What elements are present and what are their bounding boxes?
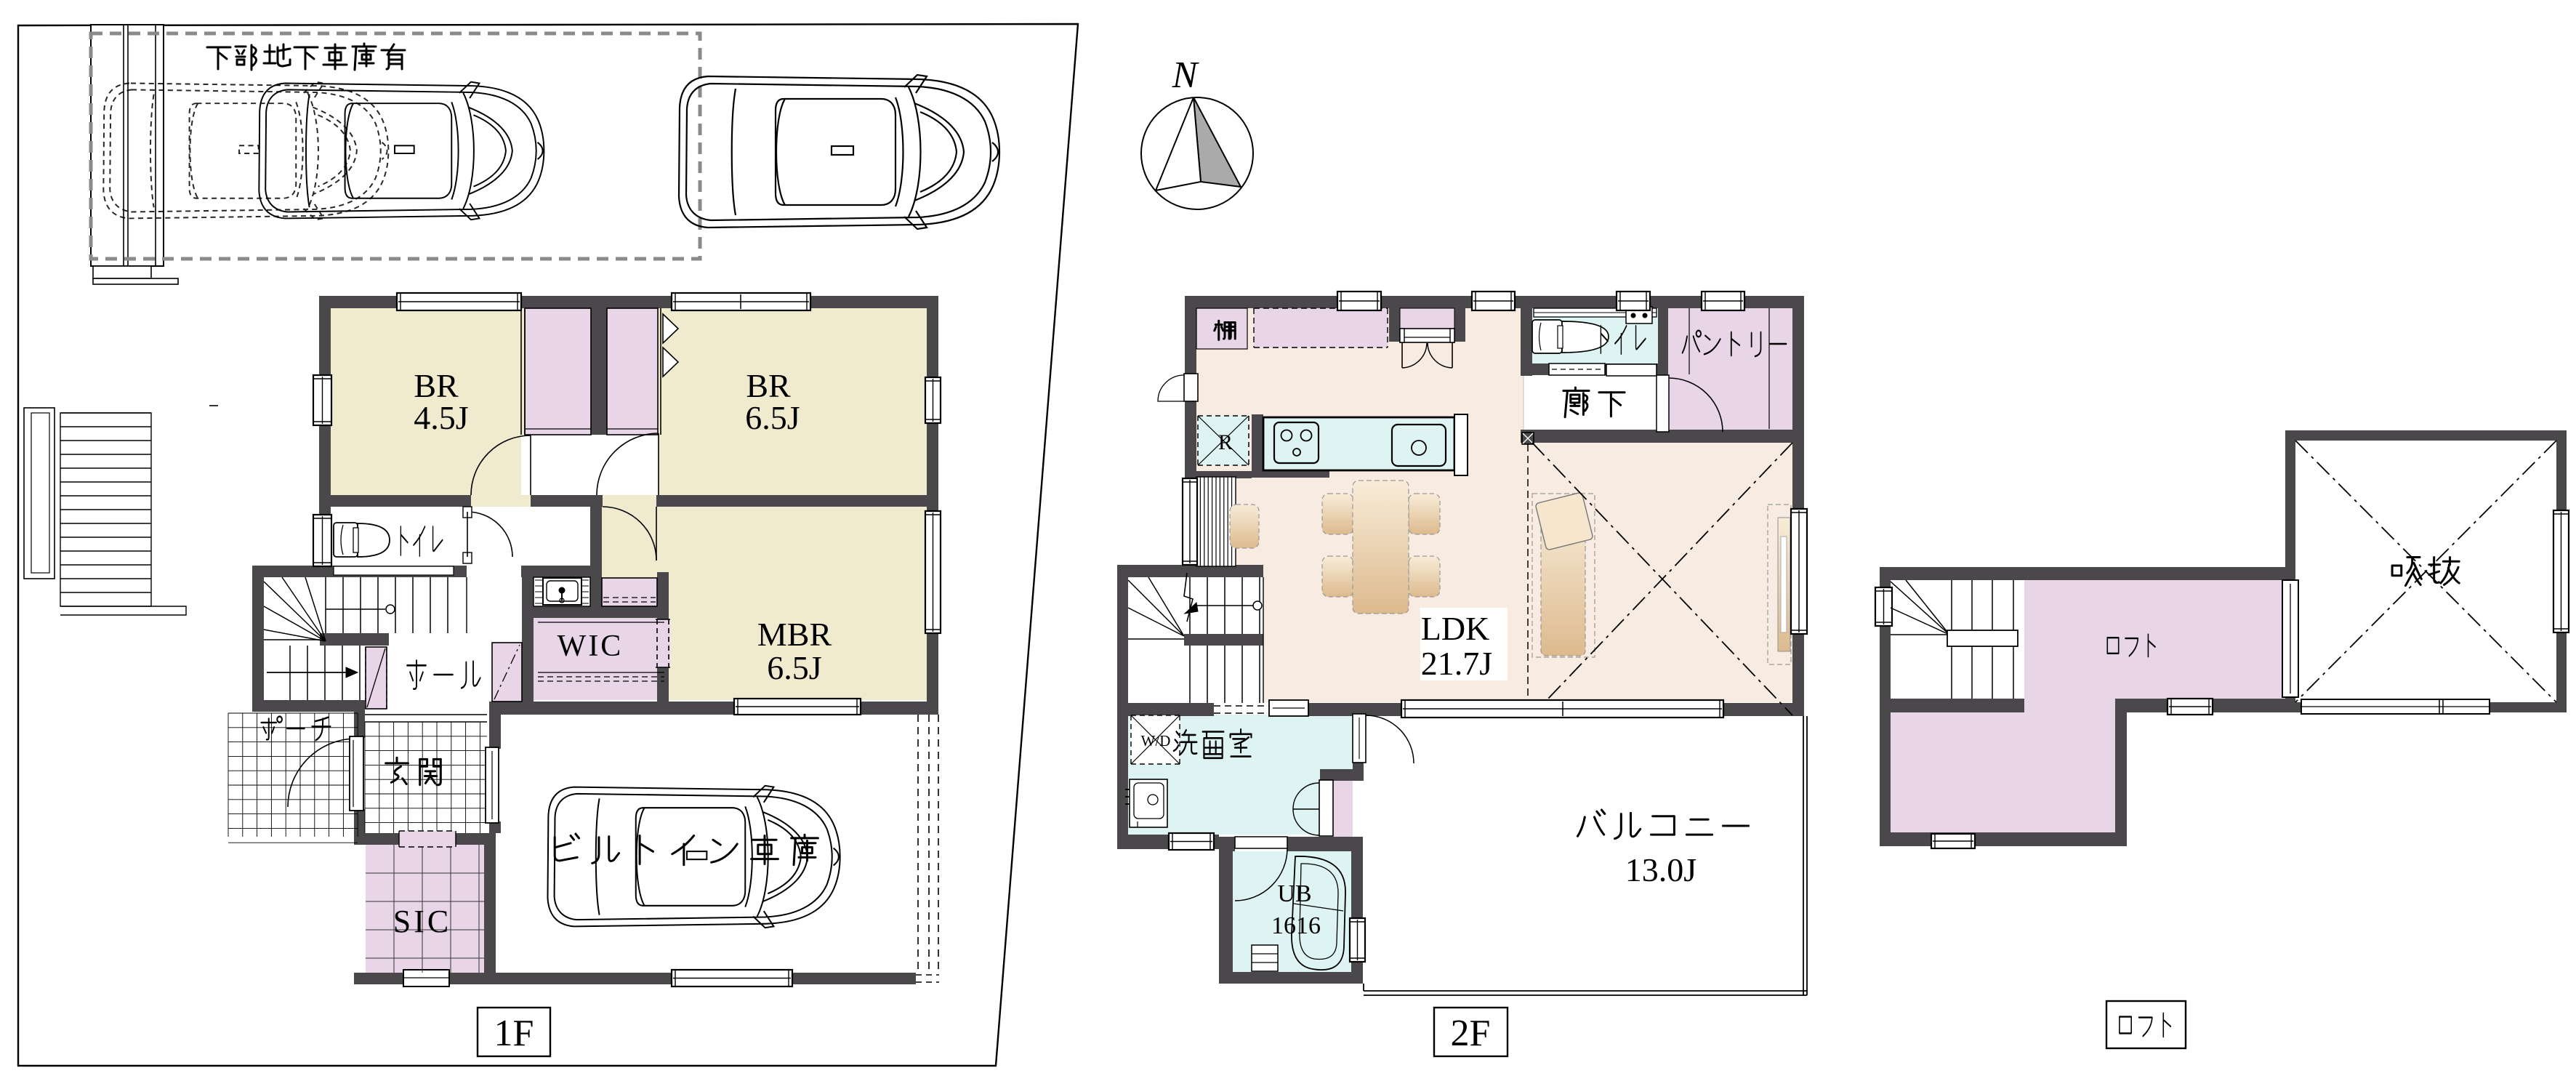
svg-text:SIC: SIC (393, 904, 451, 939)
svg-text:MBR: MBR (757, 616, 832, 653)
svg-text:W/D: W/D (1141, 732, 1171, 750)
svg-text:6.5J: 6.5J (745, 399, 800, 436)
svg-text:UB: UB (1277, 880, 1311, 907)
svg-text:4.5J: 4.5J (414, 399, 468, 436)
svg-text:1F: 1F (494, 1013, 534, 1054)
svg-text:R: R (1218, 430, 1233, 454)
svg-text:1616: 1616 (1271, 912, 1321, 939)
svg-text:WIC: WIC (558, 630, 624, 663)
svg-text:21.7J: 21.7J (1421, 645, 1492, 682)
svg-text:13.0J: 13.0J (1625, 851, 1696, 888)
svg-text:N: N (1172, 55, 1200, 96)
svg-text:LDK: LDK (1421, 610, 1490, 647)
svg-text:2F: 2F (1451, 1013, 1491, 1054)
svg-text:6.5J: 6.5J (767, 649, 821, 686)
